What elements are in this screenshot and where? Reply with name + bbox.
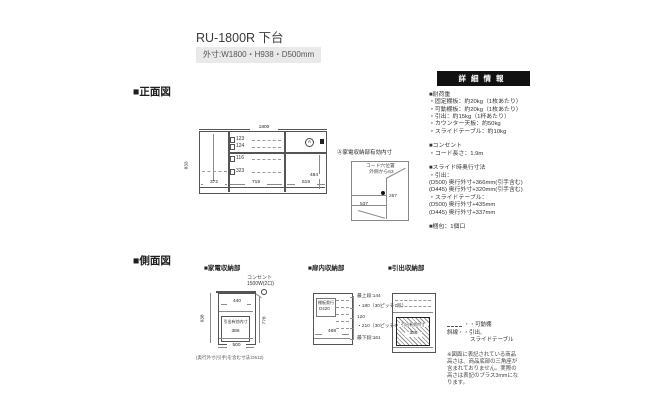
dim-line-778 <box>259 297 260 343</box>
sketch-inner-height: 267 <box>389 195 397 200</box>
text-line: (D500) 奥行外寸+435mm <box>429 202 551 209</box>
depth-note: (奥行外寸(引手)を含む寸法:D512) <box>196 356 264 361</box>
sketch-line <box>386 178 387 219</box>
movable-shelf-dash <box>395 306 431 307</box>
text-line: ・可動棚板：約20kg（1枚あたり） <box>429 107 551 114</box>
drawer-inner-depth: 386 <box>227 330 244 335</box>
legend-hatch-slide-table: スライドテーブル <box>470 338 514 344</box>
movable-shelf-dash <box>202 171 227 172</box>
dim-line-484 <box>319 155 320 189</box>
appliance-section-label: ■家電収納部 <box>204 266 240 273</box>
tick-mark <box>350 318 354 319</box>
spec-sheet: RU-1800R 下台 外寸:W1800・H938・D500mm ■正面図 18… <box>0 0 664 410</box>
drawer-inner-label: 引出有効内寸 <box>398 323 428 327</box>
movable-shelf-dash <box>252 159 281 160</box>
text-line: (D445) 奥行外寸+320mm(引手含む) <box>429 187 551 194</box>
sketch-shelf-line <box>352 195 386 196</box>
detail-panel-body: ■耐荷重・固定棚板：約20kg（1枚あたり）・可動棚板：約20kg（1枚あたり）… <box>429 92 551 232</box>
text-line: ・コード長さ：1.9m <box>429 151 551 158</box>
peg-hole-icon <box>230 144 235 150</box>
text-line: ・固定棚板：約20kg（1枚あたり） <box>429 99 551 106</box>
outlet-mark-icon <box>320 139 324 144</box>
legend-movable-shelf: ・・可動棚 <box>464 323 492 329</box>
outer-dimensions-badge: 外寸:W1800・H938・D500mm <box>196 47 321 63</box>
drawer-inner-label: 引出有効内寸 <box>222 320 249 324</box>
peg-hole-icon <box>230 137 235 143</box>
door-section-label: ■扉内収納部 <box>308 266 344 273</box>
text-line: ■スライド時奥行寸法 <box>429 165 551 172</box>
movable-shelf-dash <box>252 147 281 148</box>
peg-hole-icon <box>230 156 235 162</box>
outlet-leader-dot <box>261 289 267 295</box>
dim-row-116: 116 <box>236 156 244 161</box>
tick-mark <box>350 297 354 298</box>
dim-extent-line <box>213 134 214 186</box>
dim-row-323: 323 <box>236 169 244 174</box>
dim-right-height: 484 <box>306 174 322 179</box>
movable-shelf-dash <box>395 300 431 301</box>
detail-panel-header: 詳細情報 <box>437 71 530 86</box>
annotation-title: Ⓐ家電収納部有効内寸 <box>337 151 392 157</box>
shelf-depth-value: D420 <box>319 307 330 312</box>
drawer-section-label: ■引出収納部 <box>388 266 424 273</box>
shelf-position-dash <box>336 321 349 322</box>
dim-left-width: 372 <box>203 181 225 186</box>
dim-overall-height: 833 <box>186 161 191 169</box>
tick-label-bottom: 最下段:161 <box>357 337 381 342</box>
text-line: ・カウンター天板：約50kg <box>429 121 551 128</box>
text-line: 高さは表記のプラス3mmにな <box>447 373 547 380</box>
text-line: (D445) 奥行外寸+337mm <box>429 210 551 217</box>
text-line: ります。 <box>447 380 547 387</box>
cabinet-shelf-line <box>228 152 326 154</box>
tick-mark <box>350 308 354 309</box>
inner-shelf-line <box>219 311 253 312</box>
inner-shelf-line <box>393 312 433 313</box>
text-line: ■梱包：1個口 <box>429 224 551 231</box>
text-line: 高さは、商品底部の三角座が <box>447 359 547 366</box>
shelf-position-dash <box>336 328 349 329</box>
sketch-inner-width: 537 <box>360 203 368 208</box>
cord-hole-dot <box>381 191 385 195</box>
plinth-line <box>393 347 433 348</box>
tick-mark <box>350 339 354 340</box>
movable-shelf-dash <box>252 140 281 141</box>
shelf-position-dash <box>336 300 349 301</box>
shelf-depth-label: 棚板奥行 <box>318 301 334 305</box>
dim-height-938: 938 <box>202 314 207 322</box>
cabinet-plinth-line <box>200 187 325 188</box>
text-line: ・スライドテーブル：約10kg <box>429 129 551 136</box>
page-title: RU-1800R 下台 <box>196 27 284 46</box>
front-view-label: ■正面図 <box>133 87 171 98</box>
dim-right-width: 519 <box>295 181 317 186</box>
text-line: ※図面に表記されている商品 <box>447 352 547 359</box>
outlet-spec: 1500W(2口) <box>247 282 274 287</box>
plinth-line <box>219 338 253 339</box>
dim-width-468: 468 <box>322 330 342 335</box>
side-view-label: ■側面図 <box>133 256 171 267</box>
text-line: ■コンセント <box>429 143 551 150</box>
dim-row-124: 124 <box>236 144 244 149</box>
shelf-position-dash <box>336 307 349 308</box>
tick-mark <box>350 328 354 329</box>
dim-row-123: 123 <box>236 137 244 142</box>
tick-label-top: 最上段:144 <box>357 295 381 300</box>
dim-inner-height-778: 778 <box>264 316 269 324</box>
text-line: 含まれておりません。実際の <box>447 366 547 373</box>
height-note: ※図面に表記されている商品高さは、商品底部の三角座が含まれておりません。実際の高… <box>447 352 547 387</box>
peg-hole-icon <box>230 169 235 175</box>
legend-hatch-drawer: 斜線・・引出、 <box>447 331 486 337</box>
tick-label-mid: 120 <box>357 316 365 321</box>
dim-mid-width: 719 <box>245 181 267 186</box>
dim-top-depth: 440 <box>227 300 247 305</box>
plinth-line <box>314 338 350 339</box>
dim-depth-500: 500 <box>227 344 246 349</box>
drawer-inner-depth: 386 <box>405 332 422 337</box>
legend-dash-sample <box>447 326 462 327</box>
marker-a-badge: A <box>305 138 314 147</box>
sketch-shelf-line <box>352 205 386 206</box>
cabinet-divider-2 <box>284 131 286 192</box>
dim-line-938 <box>210 293 211 343</box>
shelf-position-dash <box>336 314 349 315</box>
movable-shelf-dash <box>252 172 281 173</box>
